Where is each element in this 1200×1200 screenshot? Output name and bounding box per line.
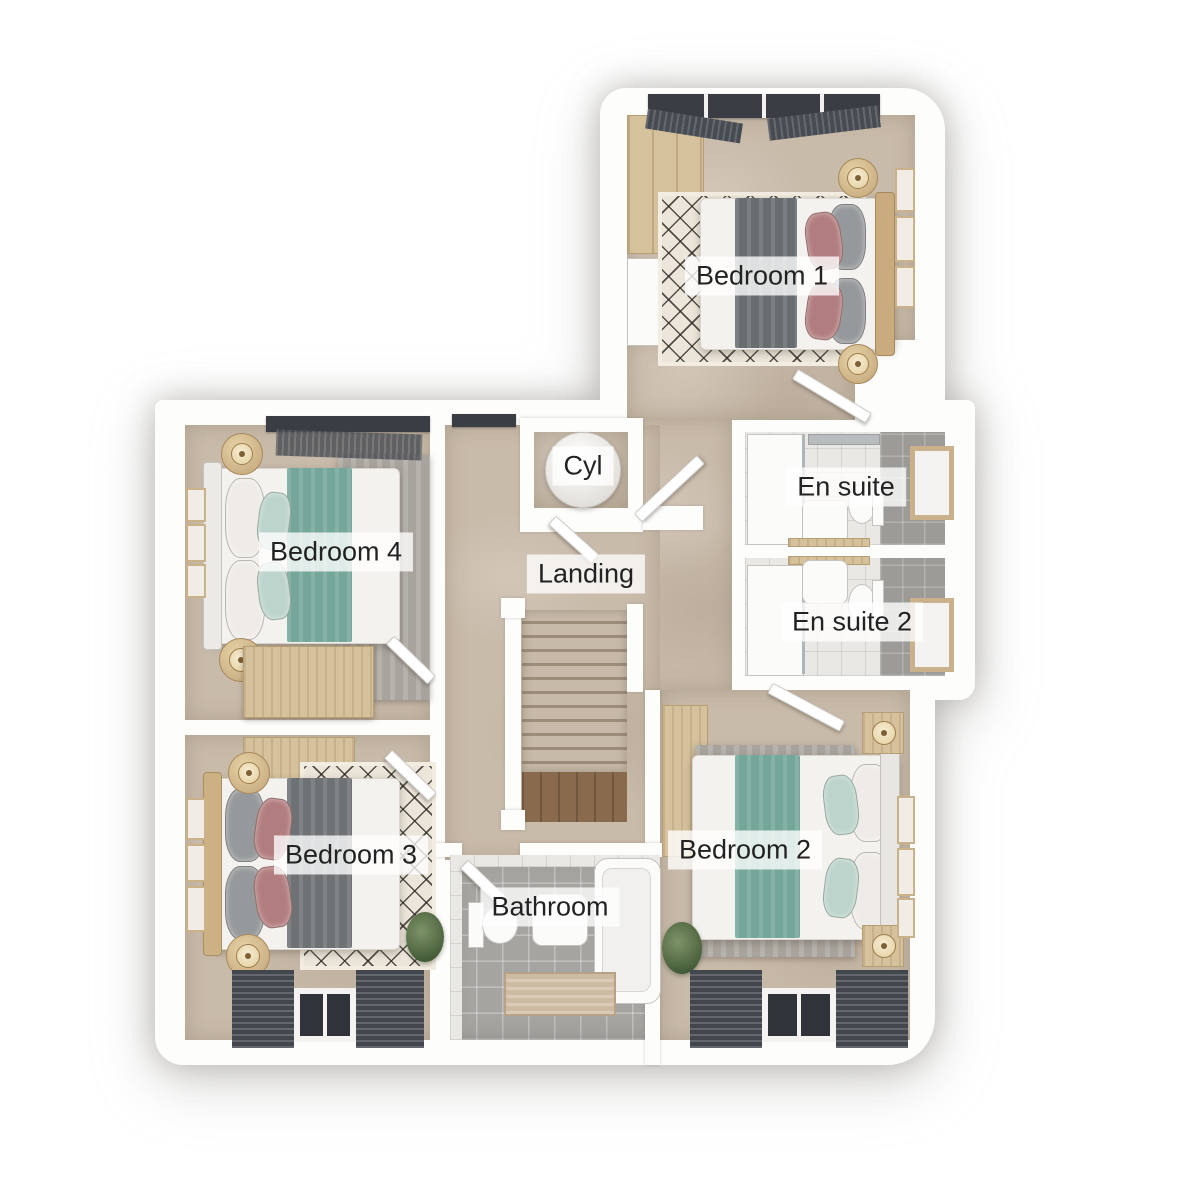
ensuite-1-mirror (808, 434, 880, 445)
bedroom-2-wall-art-2 (897, 848, 915, 896)
bedroom-1-headboard (875, 192, 895, 356)
bedroom-2-label: Bedroom 2 (668, 830, 822, 869)
floor-plan: Bedroom 1 Bedroom 4 Cyl Landing En suite… (0, 0, 1200, 1200)
staircase-wood-landing (522, 772, 627, 822)
bedroom-2-plant (662, 922, 702, 974)
ensuite-towel-rail-1 (788, 538, 870, 547)
bedroom-2-lamp-bottom (872, 934, 896, 958)
ensuite-2-sink (802, 560, 848, 604)
bedroom-1-lamp-top (847, 167, 869, 189)
bedroom-2-window (762, 988, 836, 1042)
bedroom-3-lamp-top (238, 762, 260, 784)
bathroom-mat (504, 972, 616, 1016)
bedroom-3-lamp-bottom (236, 944, 260, 968)
bedroom-3-wall-art-2 (186, 844, 206, 882)
cyl-label: Cyl (553, 446, 614, 485)
bedroom-2-wall-art-3 (897, 898, 915, 938)
bedroom-3-wall-art-1 (186, 798, 206, 840)
stair-newel-post-top (501, 598, 525, 618)
bedroom-2-wall-art-1 (897, 796, 915, 844)
bedroom-3-curtain-right (356, 970, 424, 1048)
bedroom-4-wall-art-3 (186, 564, 206, 598)
bedroom-4-wall-art-2 (186, 524, 206, 562)
bedroom-3-plant (406, 912, 444, 962)
bedroom-4-lamp-top (231, 443, 253, 465)
stair-newel-post-bottom (501, 810, 525, 830)
bedroom-4-wall-art-1 (186, 488, 206, 522)
ensuite-1-label: En suite (786, 467, 906, 506)
bedroom-3-wall-art-3 (186, 886, 206, 932)
bedroom-1-wall-art-3 (895, 266, 915, 308)
bedroom-4-blanket-box (243, 646, 374, 718)
bathroom-wall-tiles-left (450, 855, 462, 1040)
bedroom-1-wall-art-1 (895, 168, 915, 212)
ensuite-2-label: En suite 2 (781, 602, 923, 641)
bedroom-1-label: Bedroom 1 (685, 256, 839, 295)
bedroom-3-label: Bedroom 3 (274, 835, 428, 874)
bedroom-1-wall-art-2 (895, 216, 915, 262)
bedroom-2-curtain-left (690, 970, 762, 1048)
landing-window (452, 414, 516, 427)
landing-label: Landing (527, 554, 645, 593)
ensuite-1-window (910, 446, 954, 520)
stairs-side-wall (627, 604, 643, 692)
bedroom-2-lamp-top (872, 721, 896, 745)
bedroom-1-lamp-bottom (847, 353, 869, 375)
bedroom-4-label: Bedroom 4 (259, 532, 413, 571)
bedroom-4-blind (276, 429, 423, 460)
staircase (522, 610, 627, 772)
bathroom-label: Bathroom (480, 887, 619, 926)
bedroom-2-curtain-right (836, 970, 908, 1048)
bedroom-3-curtain-left (232, 970, 294, 1048)
stair-balustrade (505, 604, 521, 828)
bedroom-3-window (294, 988, 356, 1042)
